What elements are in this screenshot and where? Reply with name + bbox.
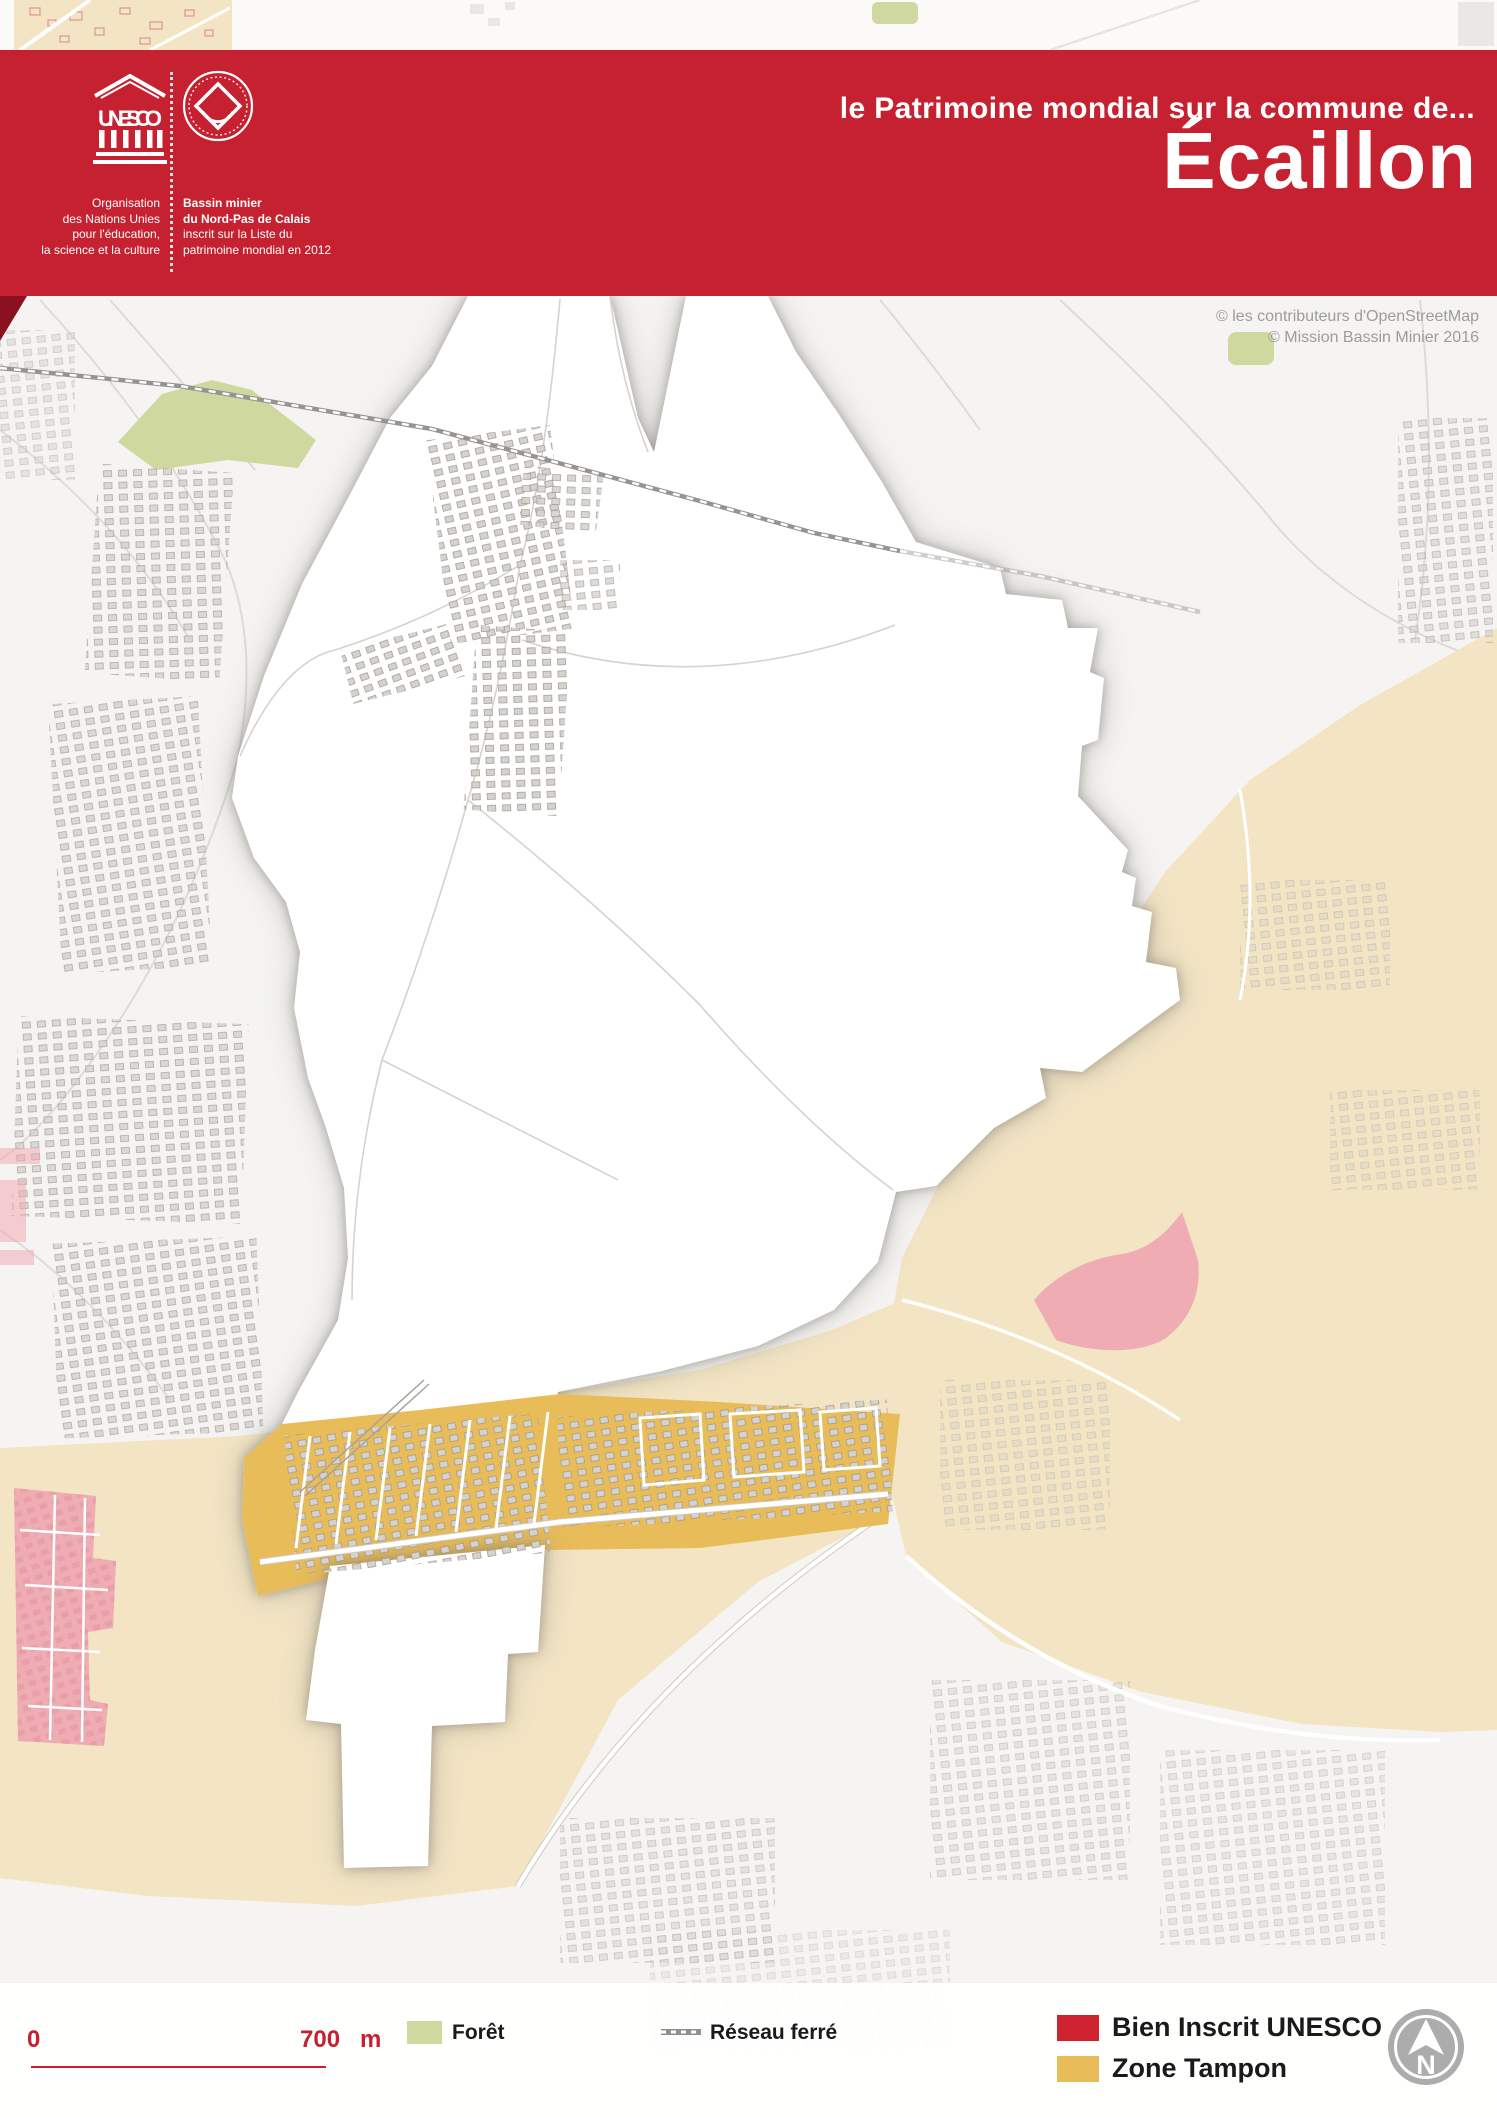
credit-osm: © les contributeurs d'OpenStreetMap: [1216, 306, 1479, 327]
legend-item-foret: Forêt: [452, 2021, 505, 2045]
scale-start-label: 0: [27, 2026, 40, 2054]
unesco-logo-icon: UNESCO: [93, 74, 167, 174]
unesco-acronym: UNESCO: [98, 106, 162, 131]
forest-area-top: [872, 2, 918, 24]
legend-item-zone-tampon: Zone Tampon: [1112, 2053, 1287, 2084]
header-dotted-separator: [170, 72, 173, 272]
top-map-strip: [0, 0, 1497, 50]
north-letter: N: [1416, 2050, 1436, 2080]
world-heritage-emblem-icon: [182, 70, 254, 142]
scale-unit-label: m: [360, 2026, 381, 2054]
map-credits: © les contributeurs d'OpenStreetMap © Mi…: [1216, 306, 1479, 348]
header-band: UNESCO Organisation des Nations Unies po…: [0, 50, 1497, 296]
page-title: Écaillon: [1162, 118, 1477, 204]
railway-symbol-icon: [660, 2026, 702, 2038]
unesco-org-text: Organisation des Nations Unies pour l'éd…: [8, 196, 160, 258]
foret-swatch: [407, 2021, 442, 2044]
bien-inscrit-swatch: [1057, 2015, 1099, 2041]
legend-item-reseau-ferre: Réseau ferré: [710, 2021, 837, 2045]
poster-page: UNESCO Organisation des Nations Unies po…: [0, 0, 1497, 2117]
site-inscription-text: Bassin minier du Nord-Pas de Calais insc…: [183, 196, 373, 258]
credit-mbm: © Mission Bassin Minier 2016: [1216, 327, 1479, 348]
scale-bar: [31, 2066, 326, 2068]
legend-item-bien-inscrit: Bien Inscrit UNESCO: [1112, 2012, 1382, 2043]
legend-backdrop: [0, 1983, 1497, 2117]
north-arrow-icon: N: [1385, 2006, 1467, 2088]
scale-distance-label: 700: [300, 2026, 340, 2054]
zone-tampon-swatch: [1057, 2056, 1099, 2082]
